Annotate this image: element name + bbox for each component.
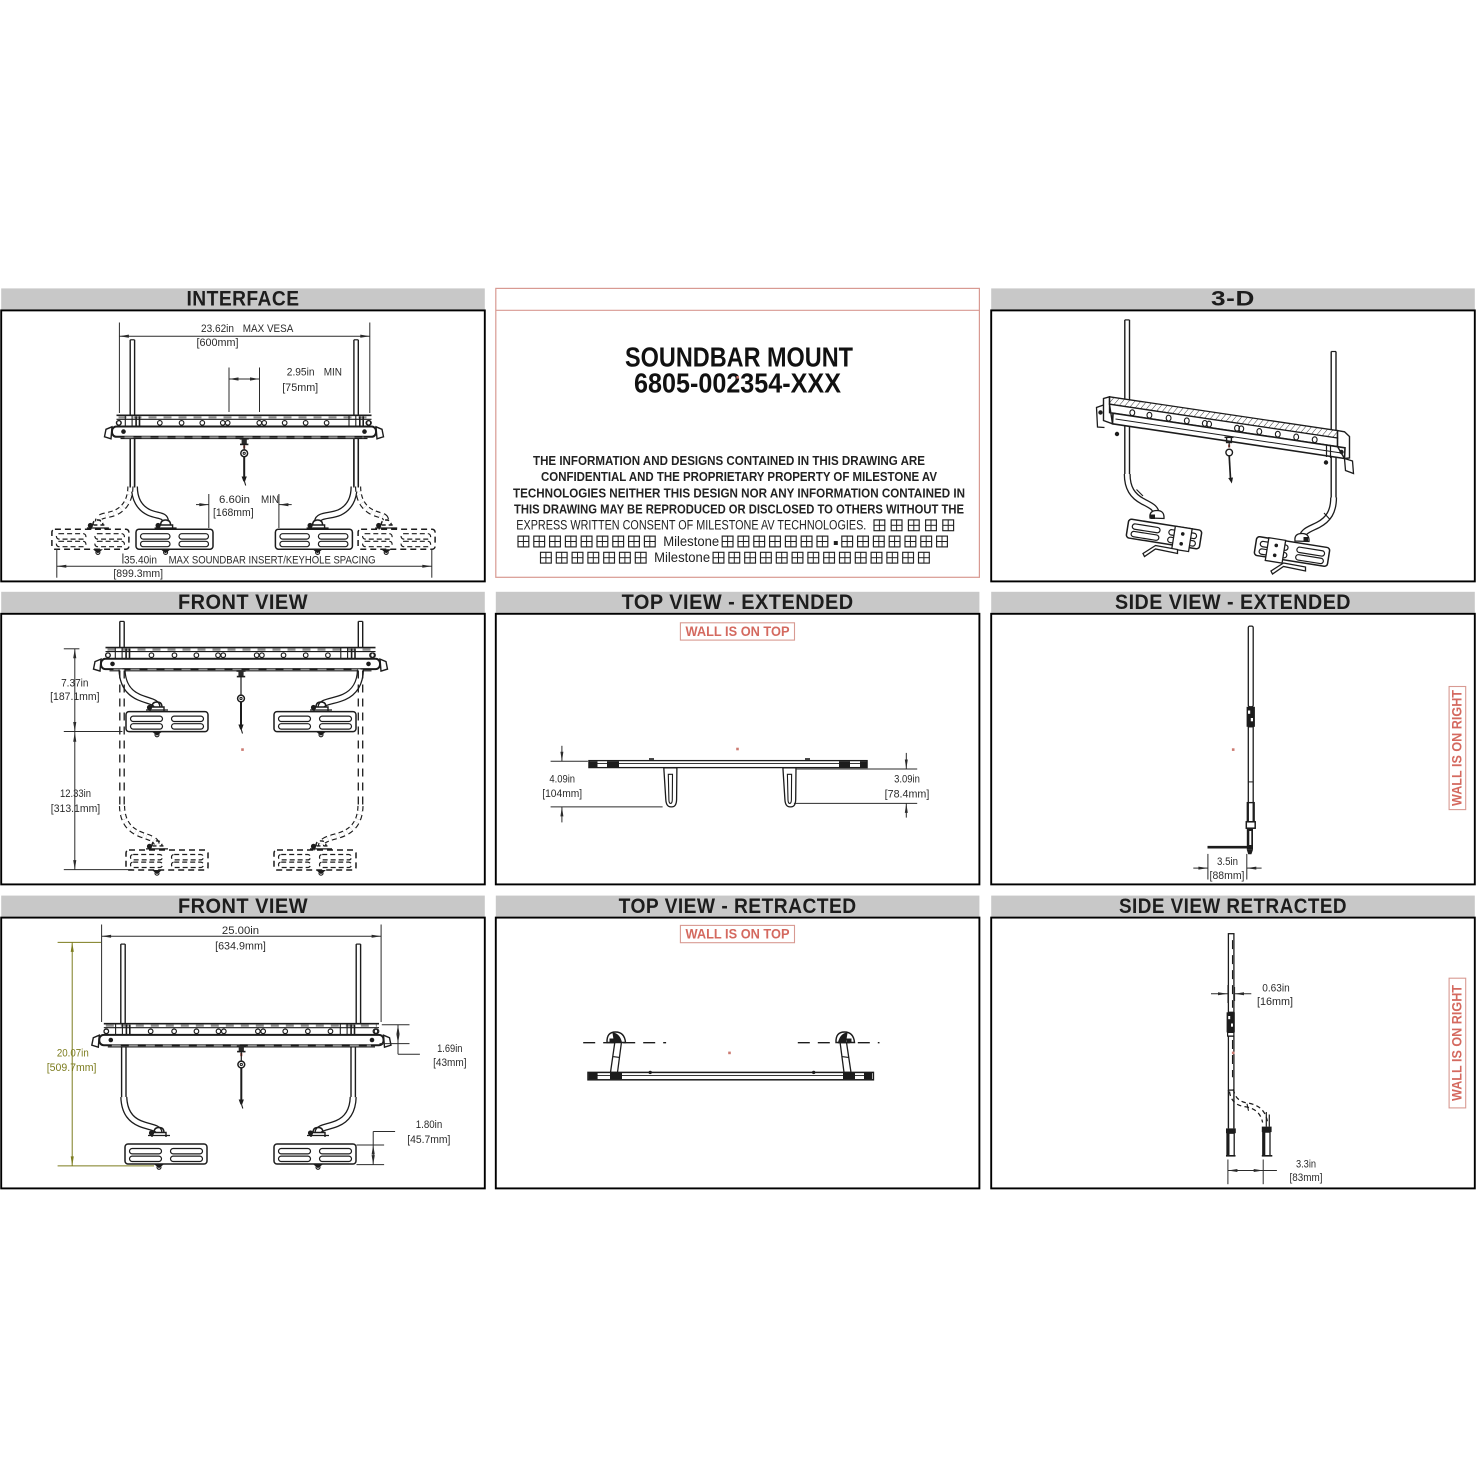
svg-text:[75mm]: [75mm] (282, 382, 318, 394)
svg-text:[899.3mm]: [899.3mm] (113, 568, 163, 580)
svg-text:SIDE VIEW - EXTENDED: SIDE VIEW - EXTENDED (1115, 591, 1351, 614)
svg-text:0.63in: 0.63in (1262, 982, 1289, 994)
svg-text:WALL IS ON RIGHT: WALL IS ON RIGHT (1450, 689, 1465, 806)
svg-text:[509.7mm]: [509.7mm] (47, 1062, 97, 1074)
svg-text:7.37in: 7.37in (61, 678, 88, 690)
svg-text:THE INFORMATION AND DESIGNS CO: THE INFORMATION AND DESIGNS CONTAINED IN… (533, 453, 925, 468)
svg-text:25.00in: 25.00in (222, 925, 259, 937)
svg-text:WALL IS ON TOP: WALL IS ON TOP (686, 624, 790, 639)
svg-text:35.40in: 35.40in (124, 554, 157, 566)
svg-text:[168mm]: [168mm] (213, 507, 254, 519)
svg-text:[45.7mm]: [45.7mm] (407, 1134, 450, 1146)
svg-text:3.09in: 3.09in (894, 774, 920, 786)
svg-text:[600mm]: [600mm] (197, 337, 239, 349)
svg-text:Milestone: Milestone (654, 550, 710, 565)
svg-text:TECHNOLOGIES NEITHER THIS DESI: TECHNOLOGIES NEITHER THIS DESIGN NOR ANY… (513, 485, 965, 500)
svg-text:2.95in: 2.95in (287, 367, 315, 379)
svg-text:FRONT VIEW: FRONT VIEW (178, 895, 308, 918)
svg-text:MIN: MIN (324, 367, 342, 379)
svg-text:[104mm]: [104mm] (542, 788, 582, 800)
svg-text:MAX VESA: MAX VESA (243, 323, 294, 335)
svg-text:Milestone: Milestone (663, 534, 719, 549)
svg-text:[187.1mm]: [187.1mm] (50, 691, 99, 703)
svg-text:23.62in: 23.62in (201, 323, 234, 335)
svg-text:3.3in: 3.3in (1296, 1159, 1316, 1171)
svg-text:[88mm]: [88mm] (1210, 870, 1245, 882)
svg-text:[43mm]: [43mm] (433, 1057, 466, 1069)
svg-text:[313.1mm]: [313.1mm] (51, 803, 100, 815)
svg-text:TOP VIEW - EXTENDED: TOP VIEW - EXTENDED (622, 591, 854, 614)
svg-text:3-D: 3-D (1211, 288, 1255, 311)
svg-text:[634.9mm]: [634.9mm] (215, 941, 266, 953)
svg-text:1.69in: 1.69in (437, 1043, 462, 1055)
svg-text:WALL IS ON RIGHT: WALL IS ON RIGHT (1450, 984, 1465, 1101)
svg-text:6805-002354-XXX: 6805-002354-XXX (634, 367, 842, 398)
svg-text:12.33in: 12.33in (60, 788, 91, 800)
svg-text:CONFIDENTIAL AND THE PROPRIETA: CONFIDENTIAL AND THE PROPRIETARY PROPERT… (541, 469, 937, 484)
svg-text:20.07in: 20.07in (57, 1048, 89, 1060)
svg-text:MAX SOUNDBAR INSERT/KEYHOLE SP: MAX SOUNDBAR INSERT/KEYHOLE SPACING (169, 554, 376, 566)
svg-text:[83mm]: [83mm] (1290, 1172, 1323, 1184)
svg-text:4.09in: 4.09in (549, 774, 575, 786)
svg-text:3.5in: 3.5in (1217, 856, 1238, 868)
svg-text:[78.4mm]: [78.4mm] (885, 789, 930, 801)
svg-text:MIN: MIN (261, 494, 279, 506)
svg-text:1.80in: 1.80in (416, 1119, 443, 1131)
svg-text:TOP VIEW - RETRACTED: TOP VIEW - RETRACTED (619, 895, 857, 918)
svg-text:FRONT VIEW: FRONT VIEW (178, 591, 308, 614)
svg-text:INTERFACE: INTERFACE (187, 288, 300, 311)
svg-text:THIS DRAWING MAY BE REPRODUCED: THIS DRAWING MAY BE REPRODUCED OR DISCLO… (514, 502, 964, 517)
svg-text:SIDE VIEW RETRACTED: SIDE VIEW RETRACTED (1119, 895, 1347, 918)
svg-text:EXPRESS WRITTEN CONSENT OF MIL: EXPRESS WRITTEN CONSENT OF MILESTONE AV … (516, 518, 866, 533)
svg-text:WALL IS ON TOP: WALL IS ON TOP (686, 927, 790, 942)
svg-text:6.60in: 6.60in (219, 494, 250, 506)
svg-text:[16mm]: [16mm] (1257, 996, 1293, 1008)
